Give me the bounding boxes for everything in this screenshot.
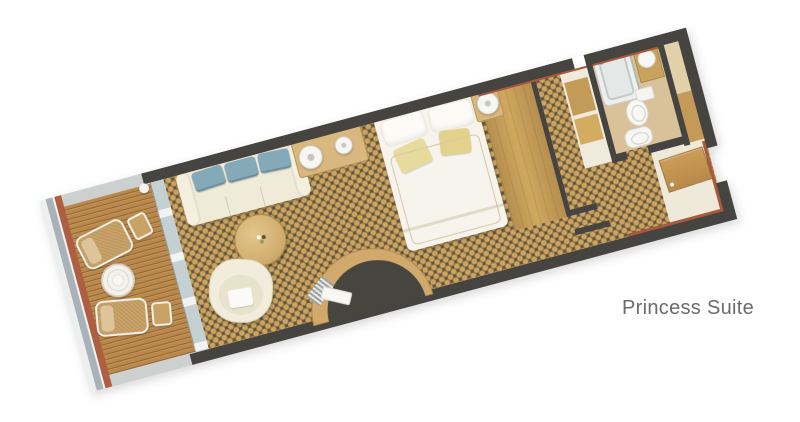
lounge-chair-footrest — [151, 301, 173, 327]
floorplan-princess-suite — [39, 28, 737, 393]
lounge-chair — [94, 293, 175, 340]
lounge-chair-cushion — [100, 305, 115, 332]
page-canvas: Princess Suite — [0, 0, 800, 422]
armchair-cushion — [227, 287, 254, 309]
flower-vase — [254, 231, 268, 244]
armchair — [207, 257, 274, 324]
lounge-chair-cushion — [80, 236, 103, 265]
suite-name-label: Princess Suite — [622, 297, 754, 320]
lounge-chair-frame — [94, 297, 149, 337]
